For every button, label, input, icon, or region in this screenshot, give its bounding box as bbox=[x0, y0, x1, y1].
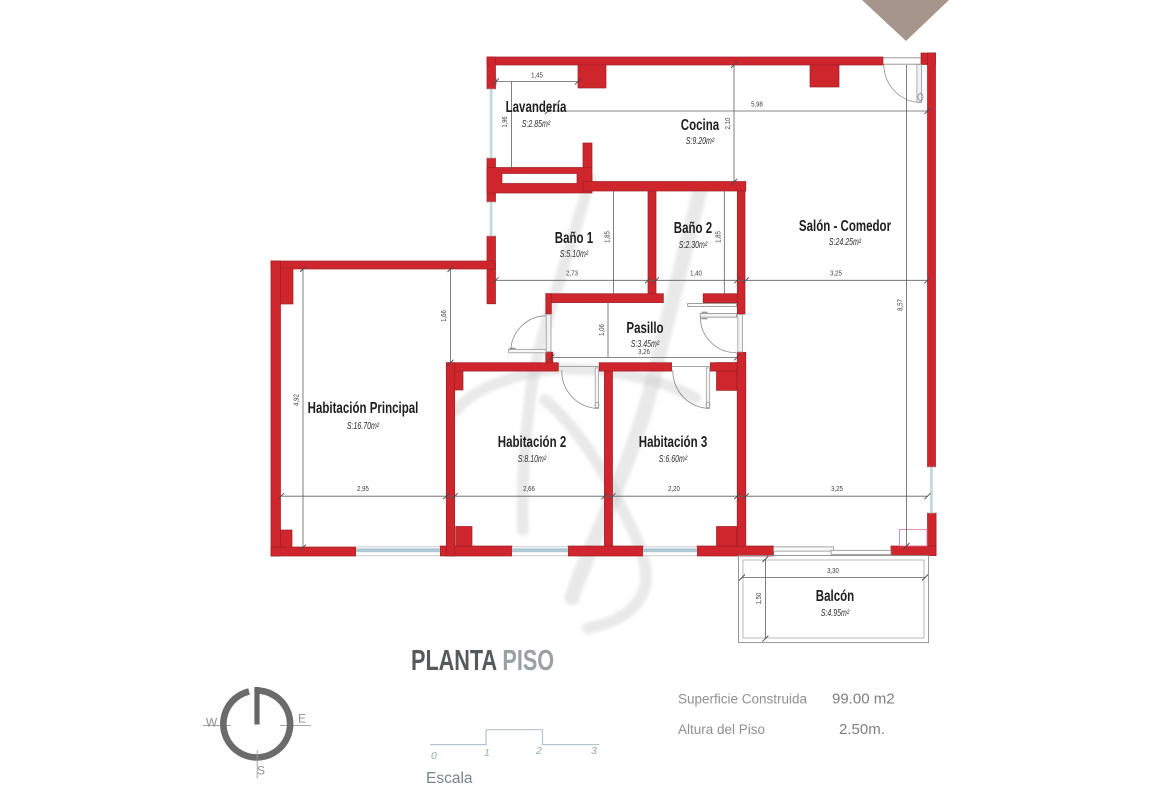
svg-text:Lavandería: Lavandería bbox=[506, 97, 567, 115]
svg-text:S:9.20m²: S:9.20m² bbox=[686, 135, 715, 147]
svg-text:Superficie Construida: Superficie Construida bbox=[678, 692, 808, 707]
svg-text:2,20: 2,20 bbox=[668, 485, 680, 493]
svg-text:2,66: 2,66 bbox=[523, 485, 535, 493]
svg-text:S:16.70m²: S:16.70m² bbox=[347, 420, 380, 432]
svg-text:S:24.25m²: S:24.25m² bbox=[829, 236, 862, 248]
svg-text:1,85: 1,85 bbox=[604, 231, 612, 243]
svg-text:S:2.85m²: S:2.85m² bbox=[522, 118, 551, 130]
svg-text:S: S bbox=[257, 764, 265, 778]
svg-text:1: 1 bbox=[484, 747, 490, 759]
svg-text:S:6.60m²: S:6.60m² bbox=[659, 453, 688, 465]
svg-text:2.50m.: 2.50m. bbox=[839, 721, 885, 738]
svg-text:1,85: 1,85 bbox=[715, 231, 723, 243]
svg-text:Pasillo: Pasillo bbox=[626, 318, 663, 336]
svg-text:1,45: 1,45 bbox=[531, 72, 543, 80]
svg-text:Baño 2: Baño 2 bbox=[674, 218, 713, 236]
svg-text:Balcón: Balcón bbox=[816, 586, 854, 604]
svg-text:8,57: 8,57 bbox=[897, 299, 905, 311]
svg-text:Altura del Piso: Altura del Piso bbox=[678, 722, 765, 737]
svg-text:2: 2 bbox=[535, 745, 542, 757]
svg-text:Escala: Escala bbox=[426, 770, 473, 785]
svg-text:3,30: 3,30 bbox=[827, 567, 839, 575]
svg-text:4,92: 4,92 bbox=[293, 394, 301, 406]
svg-text:3,25: 3,25 bbox=[830, 270, 842, 278]
svg-text:Cocina: Cocina bbox=[681, 115, 720, 133]
svg-text:3,25: 3,25 bbox=[831, 485, 843, 493]
svg-text:S:5.10m²: S:5.10m² bbox=[560, 248, 589, 260]
svg-text:5,98: 5,98 bbox=[751, 101, 763, 109]
svg-text:S:2.30m²: S:2.30m² bbox=[679, 239, 708, 251]
svg-text:E: E bbox=[298, 712, 306, 726]
svg-text:S:8.10m²: S:8.10m² bbox=[518, 453, 547, 465]
svg-text:2,10: 2,10 bbox=[724, 117, 732, 129]
svg-text:Baño 1: Baño 1 bbox=[555, 228, 594, 246]
svg-text:Habitación 2: Habitación 2 bbox=[498, 432, 567, 450]
svg-text:W: W bbox=[206, 716, 218, 730]
svg-text:99.00 m2: 99.00 m2 bbox=[832, 691, 895, 708]
svg-text:S:3.45m²: S:3.45m² bbox=[631, 338, 660, 350]
svg-text:0: 0 bbox=[431, 750, 437, 762]
svg-text:Salón - Comedor: Salón - Comedor bbox=[799, 216, 892, 234]
svg-text:Habitación 3: Habitación 3 bbox=[639, 432, 708, 450]
svg-text:Habitación Principal: Habitación Principal bbox=[308, 398, 419, 416]
svg-text:2,95: 2,95 bbox=[357, 485, 369, 493]
svg-text:3,26: 3,26 bbox=[638, 349, 650, 357]
svg-text:1,40: 1,40 bbox=[690, 270, 702, 278]
svg-text:S:4.95m²: S:4.95m² bbox=[821, 607, 850, 619]
svg-text:1,66: 1,66 bbox=[440, 310, 448, 322]
svg-text:2,73: 2,73 bbox=[566, 270, 578, 278]
svg-text:1,50: 1,50 bbox=[755, 592, 763, 604]
svg-text:1,96: 1,96 bbox=[501, 116, 509, 127]
svg-text:PLANTA PISO: PLANTA PISO bbox=[411, 645, 554, 677]
svg-text:1,06: 1,06 bbox=[598, 324, 606, 336]
svg-text:3: 3 bbox=[591, 745, 597, 757]
